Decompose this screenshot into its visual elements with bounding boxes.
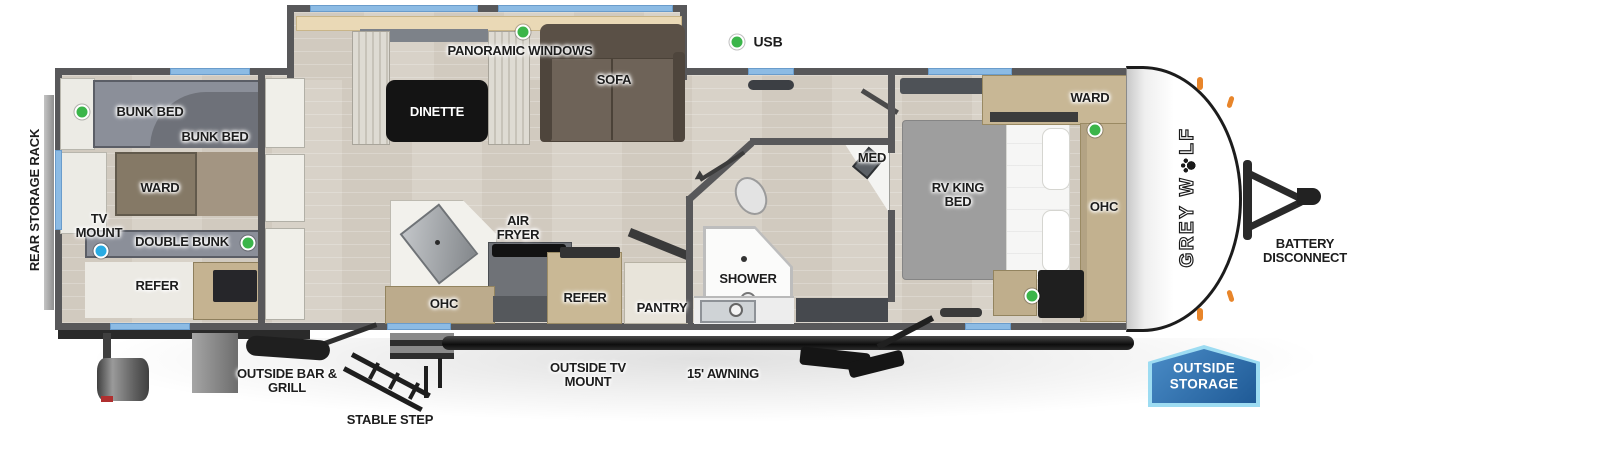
paw-icon: [1181, 158, 1196, 173]
label-pantry: PANTRY: [637, 301, 688, 315]
cabinet: [265, 228, 305, 320]
label-sofa: SOFA: [597, 73, 632, 87]
stable-step-leg: [438, 358, 442, 388]
brand-logo-post: LF: [1177, 127, 1199, 155]
window: [498, 5, 673, 12]
bath-sink: [700, 300, 756, 323]
wall: [888, 210, 895, 302]
shower-drain: [741, 256, 747, 262]
window: [928, 68, 1012, 75]
label-ohc-bedroom: OHC: [1090, 200, 1118, 214]
wall: [750, 138, 893, 145]
label-med: MED: [858, 151, 886, 165]
pillow: [1042, 128, 1070, 190]
label-double-bunk: DOUBLE BUNK: [135, 235, 229, 249]
label-refer-kitchen: REFER: [563, 291, 606, 305]
entry-door-threshold: [387, 323, 451, 330]
label-shower: SHOWER: [719, 272, 776, 286]
awning-rail: [442, 336, 1134, 350]
cabinet: [265, 154, 305, 222]
vent: [748, 80, 794, 90]
label-air-fryer: AIR FRYER: [492, 214, 544, 242]
window: [310, 5, 478, 12]
clearance-light: [1197, 308, 1203, 321]
nightstand: [1038, 270, 1084, 318]
brand-logo-pre: GREY W: [1177, 176, 1199, 268]
outside-storage-badge-label: OUTSIDE STORAGE: [1161, 360, 1247, 391]
wall: [258, 75, 265, 323]
sink-drain: [435, 240, 440, 245]
cooktop: [213, 270, 257, 302]
wall: [888, 75, 895, 153]
label-ohc-kitchen: OHC: [430, 297, 458, 311]
sofa-armrest: [540, 52, 552, 142]
ward-shadow: [990, 112, 1078, 122]
usb-legend-icon: [730, 35, 745, 50]
label-bunk-bed-upper: BUNK BED: [116, 105, 183, 119]
wardrobe-side: [197, 152, 259, 216]
tv-mount-indicator-icon: [94, 244, 109, 259]
label-ward-bunk: WARD: [141, 181, 180, 195]
label-tv-mount: TV MOUNT: [70, 212, 128, 240]
bath-faucet: [729, 303, 743, 317]
rear-storage-rack-bar: [44, 95, 54, 310]
label-panoramic-windows: PANORAMIC WINDOWS: [447, 44, 592, 58]
remote-item: [940, 308, 982, 317]
sofa-armrest: [673, 52, 685, 142]
usb-indicator-icon: [75, 105, 90, 120]
bath-counter-dark: [796, 298, 888, 322]
ohc-bedroom: [1080, 123, 1130, 322]
usb-indicator-icon: [1088, 123, 1103, 138]
label-outside-bar-grill: OUTSIDE BAR & GRILL: [232, 367, 342, 395]
window: [965, 323, 1011, 330]
spare-tire: [97, 358, 149, 401]
label-bunk-bed-lower: BUNK BED: [181, 130, 248, 144]
spare-tire-tag: [101, 396, 113, 402]
stable-step-leg: [424, 366, 428, 398]
window: [170, 68, 250, 75]
label-rear-storage-rack: REAR STORAGE RACK: [28, 129, 42, 271]
clearance-light: [1226, 290, 1234, 303]
usb-indicator-icon: [241, 236, 256, 251]
hitch-arm: [1247, 170, 1302, 202]
dinette-bench: [352, 31, 390, 145]
cabinet: [265, 78, 305, 148]
counter-dark: [493, 296, 547, 322]
pillow: [1042, 210, 1070, 272]
hitch-arm: [1247, 199, 1302, 231]
label-rv-king-bed: RV KING BED: [922, 181, 994, 209]
window: [110, 323, 190, 330]
refrigerator: [547, 252, 622, 324]
label-refer-bunk: REFER: [135, 279, 178, 293]
sofa-cushion-split: [611, 58, 613, 140]
usb-indicator-icon: [516, 25, 531, 40]
hitch-coupler: [1297, 188, 1321, 205]
window: [55, 150, 62, 230]
label-awning: 15' AWNING: [687, 367, 759, 381]
usb-indicator-icon: [1025, 289, 1040, 304]
label-outside-tv-mount: OUTSIDE TV MOUNT: [544, 361, 632, 389]
brand-logo: GREY W LF: [1174, 87, 1202, 307]
label-dinette: DINETTE: [410, 105, 464, 119]
sofa-seat: [546, 58, 681, 142]
window: [748, 68, 794, 75]
usb-legend-label: USB: [754, 34, 783, 49]
label-ward-bedroom: WARD: [1071, 91, 1110, 105]
label-battery-disconnect: BATTERY DISCONNECT: [1249, 237, 1361, 265]
label-stable-step: STABLE STEP: [347, 413, 433, 427]
refrigerator-top: [560, 247, 620, 258]
floorplan: GREY W LF OUTSIDE STORAGE USB REAR STORA: [0, 0, 1600, 465]
clearance-light: [1226, 96, 1234, 109]
